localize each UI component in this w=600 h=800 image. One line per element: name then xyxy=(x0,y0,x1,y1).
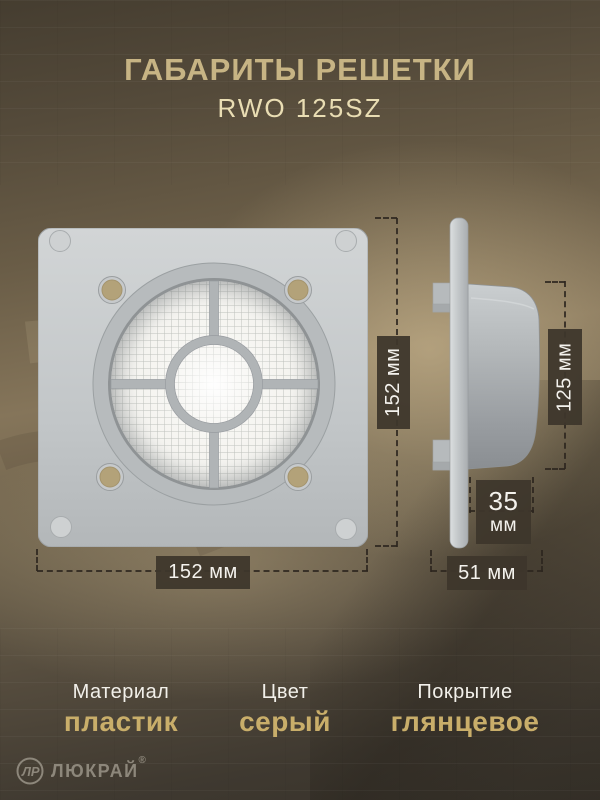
brand-name-text: ЛЮКРАЙ xyxy=(51,761,139,781)
dim-tick xyxy=(375,217,397,219)
dim-label-side-height: 125 мм xyxy=(548,329,582,425)
spec-color: Цвет серый xyxy=(190,681,380,738)
spec-material-value: пластик xyxy=(26,706,216,738)
brand-name: ЛЮКРАЙ® xyxy=(51,761,147,782)
product-infographic: ГАБАРИТЫ РЕШЕТКИ RWO 125SZ xyxy=(0,0,600,800)
model-number: RWO 125SZ xyxy=(0,93,600,124)
dim-tick xyxy=(545,468,565,470)
dim-tick xyxy=(36,549,38,571)
dim-tick xyxy=(366,549,368,571)
brand-logo: ЛР ЛЮКРАЙ® xyxy=(15,756,147,786)
dim-label-total-depth: 51 мм xyxy=(447,556,527,590)
flange-edge xyxy=(450,218,468,548)
spec-material: Материал пластик xyxy=(26,681,216,738)
dim-tick xyxy=(469,477,471,513)
brand-monogram: ЛР xyxy=(21,764,40,779)
brand-monogram-icon: ЛР xyxy=(15,756,45,786)
spec-color-value: серый xyxy=(190,706,380,738)
dim-label-front-width: 152 мм xyxy=(156,556,250,589)
duct-collar xyxy=(468,284,540,469)
dim-tick xyxy=(532,477,534,513)
dim-tick xyxy=(430,550,432,572)
dim-collar-depth-unit: мм xyxy=(490,516,517,536)
page-title: ГАБАРИТЫ РЕШЕТКИ xyxy=(0,52,600,88)
dim-tick xyxy=(541,550,543,572)
registered-mark: ® xyxy=(139,755,148,766)
spec-coating-value: глянцевое xyxy=(370,706,560,738)
spec-coating: Покрытие глянцевое xyxy=(370,681,560,738)
dim-tick xyxy=(375,545,397,547)
dim-tick xyxy=(545,281,565,283)
dim-collar-depth-value: 35 xyxy=(489,488,519,515)
grille-front-view xyxy=(38,228,368,547)
dim-label-collar-depth: 35 мм xyxy=(476,480,531,544)
dim-label-front-height: 152 мм xyxy=(377,336,410,429)
spec-material-label: Материал xyxy=(26,681,216,704)
spec-coating-label: Покрытие xyxy=(370,681,560,704)
spec-color-label: Цвет xyxy=(190,681,380,704)
